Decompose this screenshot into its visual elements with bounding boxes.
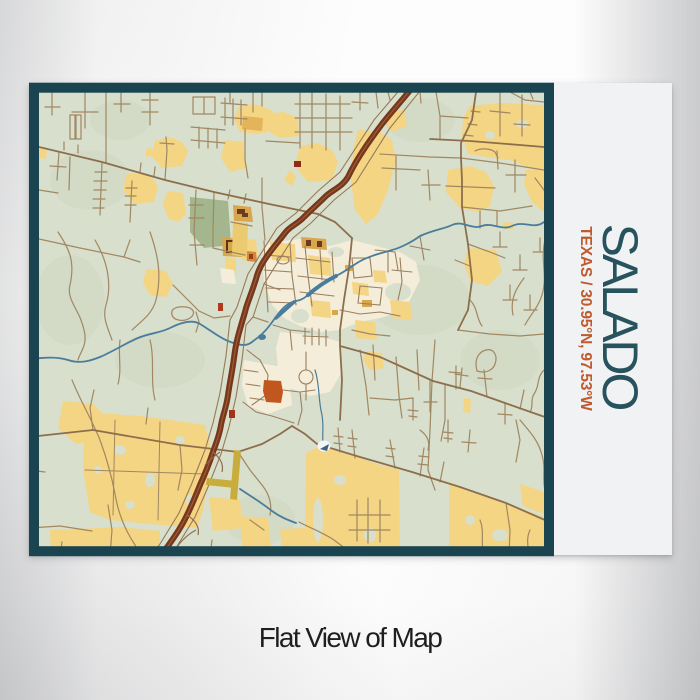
svg-text:SALADO: SALADO	[592, 224, 648, 410]
svg-text:TEXAS / 30.95°N, 97.53°W: TEXAS / 30.95°N, 97.53°W	[577, 226, 594, 411]
